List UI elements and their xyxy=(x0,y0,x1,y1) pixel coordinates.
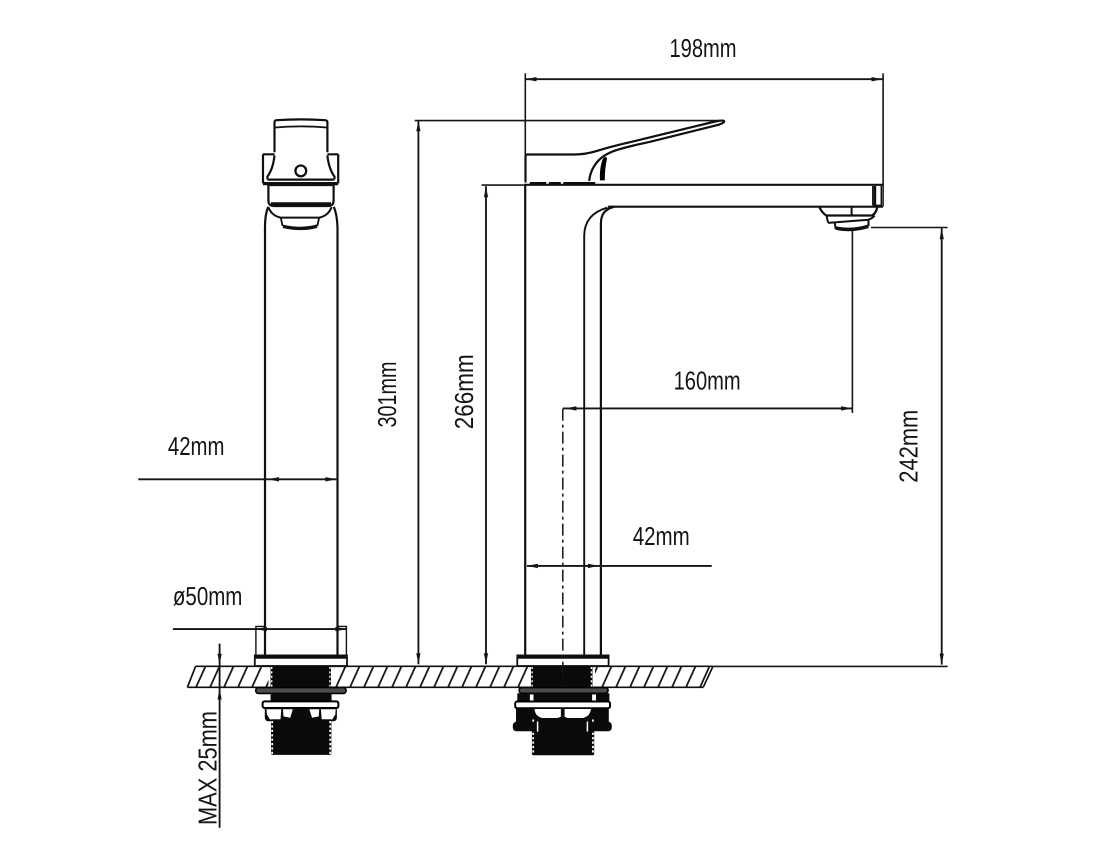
svg-text:160mm: 160mm xyxy=(674,366,741,396)
svg-text:301mm: 301mm xyxy=(372,362,402,428)
svg-text:ø50mm: ø50mm xyxy=(173,581,243,611)
svg-text:42mm: 42mm xyxy=(168,431,225,461)
svg-text:42mm: 42mm xyxy=(633,521,690,551)
svg-text:198mm: 198mm xyxy=(670,33,737,63)
svg-text:MAX 25mm: MAX 25mm xyxy=(193,711,223,825)
svg-text:242mm: 242mm xyxy=(894,410,924,483)
svg-text:266mm: 266mm xyxy=(449,354,479,429)
